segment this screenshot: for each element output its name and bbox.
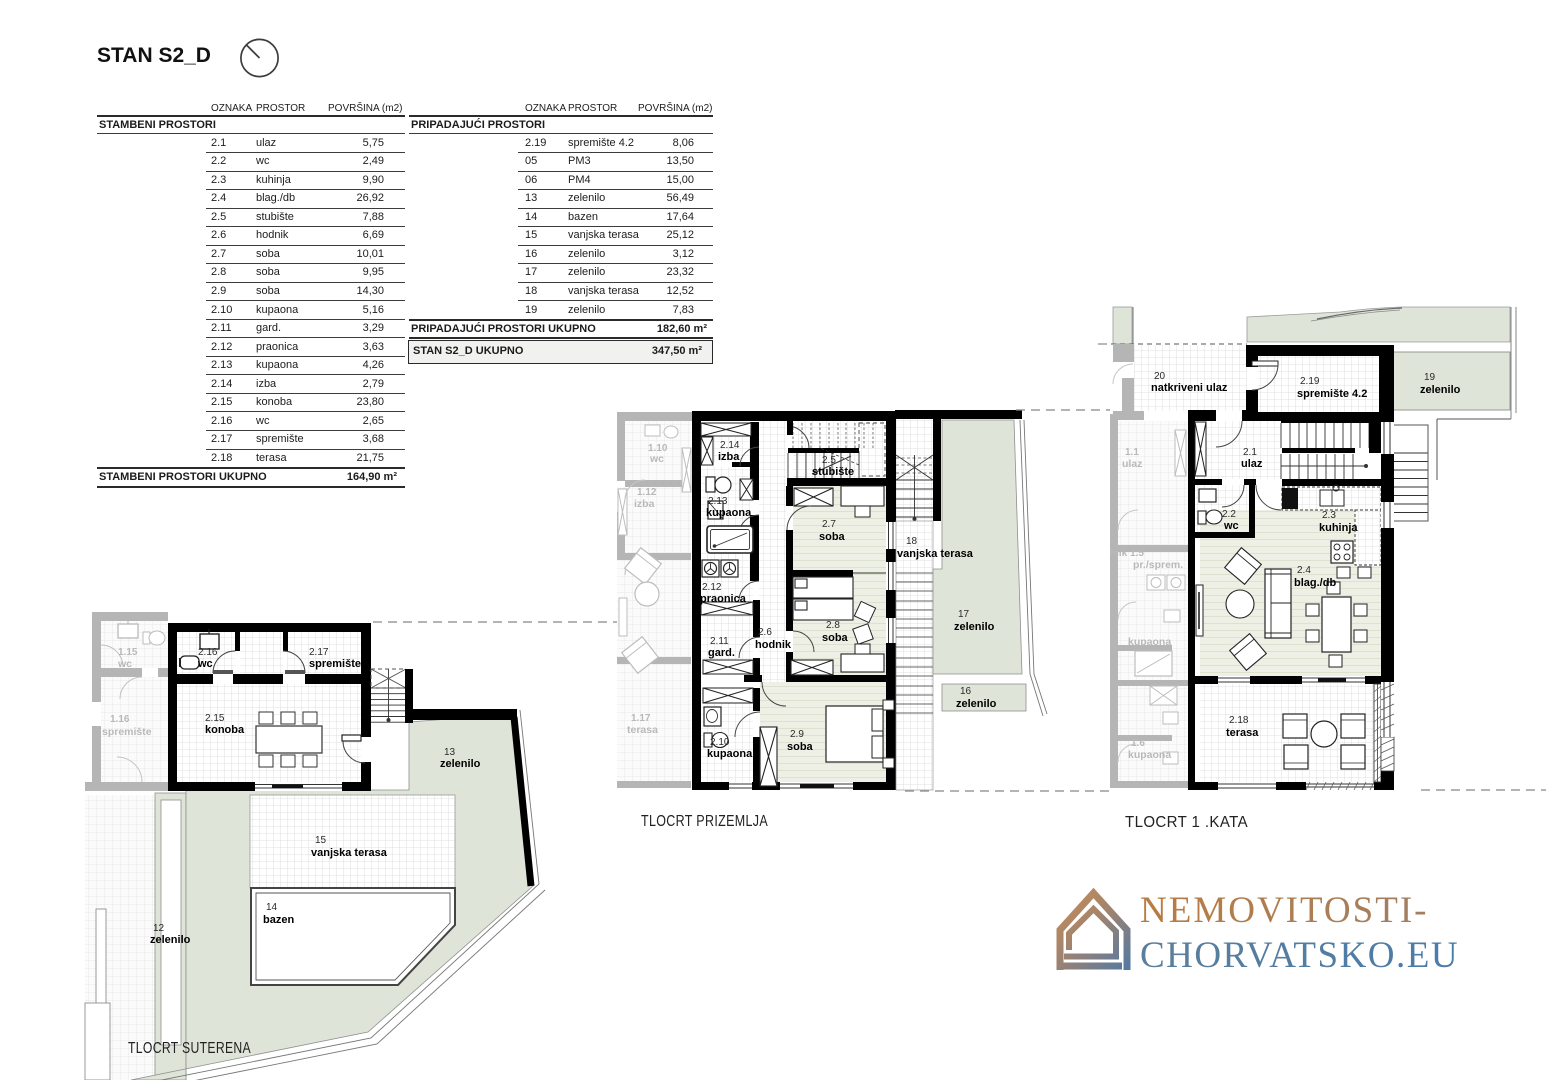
svg-text:2.2: 2.2: [1222, 509, 1236, 520]
svg-text:lnik 1.5: lnik 1.5: [1110, 548, 1144, 559]
svg-text:zelenilo: zelenilo: [956, 698, 997, 710]
svg-text:2.17: 2.17: [309, 647, 329, 658]
svg-text:2.19: 2.19: [1300, 376, 1320, 387]
svg-text:2.13: 2.13: [708, 496, 728, 507]
svg-text:terasa: terasa: [1226, 727, 1259, 739]
svg-text:1.1: 1.1: [1125, 447, 1139, 458]
svg-text:kupaona: kupaona: [1128, 749, 1171, 761]
svg-text:soba: soba: [787, 741, 814, 753]
svg-text:1.12: 1.12: [637, 487, 657, 498]
svg-text:kupaona: kupaona: [707, 748, 753, 760]
svg-text:bazen: bazen: [263, 914, 294, 926]
svg-text:2.18: 2.18: [1229, 715, 1249, 726]
svg-text:spremište: spremište: [102, 726, 152, 738]
svg-text:15: 15: [315, 835, 327, 846]
svg-text:gard.: gard.: [708, 647, 735, 659]
svg-text:2.8: 2.8: [826, 620, 840, 631]
svg-text:zelenilo: zelenilo: [1420, 384, 1461, 396]
svg-text:2.6: 2.6: [758, 627, 772, 638]
svg-text:1.17: 1.17: [631, 713, 651, 724]
svg-text:terasa: terasa: [627, 724, 658, 736]
svg-text:stubište: stubište: [812, 466, 854, 478]
svg-text:soba: soba: [819, 531, 846, 543]
svg-text:wc: wc: [197, 658, 213, 670]
svg-text:20: 20: [1154, 371, 1166, 382]
svg-text:TLOCRT PRIZEMLJA: TLOCRT PRIZEMLJA: [641, 813, 768, 830]
svg-text:spremište: spremište: [309, 658, 361, 670]
svg-text:17: 17: [958, 609, 970, 620]
svg-text:2.1: 2.1: [1243, 447, 1257, 458]
svg-text:1.15: 1.15: [118, 647, 138, 658]
svg-text:TLOCRT SUTERENA: TLOCRT SUTERENA: [128, 1040, 251, 1057]
svg-text:2.12: 2.12: [702, 582, 722, 593]
svg-text:1.6: 1.6: [1131, 738, 1145, 749]
svg-text:kuhinja: kuhinja: [1319, 522, 1358, 534]
svg-text:2.3: 2.3: [1322, 510, 1336, 521]
svg-text:kupaona: kupaona: [1128, 636, 1171, 648]
svg-text:1.16: 1.16: [110, 714, 130, 725]
svg-text:2.16: 2.16: [198, 647, 218, 658]
svg-text:2.4: 2.4: [1297, 565, 1311, 576]
svg-text:izba: izba: [634, 498, 655, 510]
svg-text:kupaona: kupaona: [706, 507, 752, 519]
svg-text:13: 13: [444, 747, 456, 758]
svg-text:ulaz: ulaz: [1122, 458, 1142, 470]
svg-text:12: 12: [153, 923, 165, 934]
svg-text:2.14: 2.14: [720, 440, 740, 451]
svg-text:2.15: 2.15: [205, 713, 225, 724]
svg-text:2.5: 2.5: [822, 455, 836, 466]
svg-text:18: 18: [906, 536, 918, 547]
svg-text:zelenilo: zelenilo: [440, 758, 481, 770]
svg-text:pr./sprem.: pr./sprem.: [1133, 559, 1183, 571]
svg-text:izba: izba: [718, 451, 740, 463]
svg-text:spremište 4.2: spremište 4.2: [1297, 388, 1367, 400]
svg-text:2.11: 2.11: [710, 636, 729, 647]
svg-text:14: 14: [266, 902, 278, 913]
svg-text:soba: soba: [822, 632, 849, 644]
svg-text:TLOCRT 1 .KATA: TLOCRT 1 .KATA: [1125, 814, 1248, 831]
svg-text:wc: wc: [117, 658, 132, 670]
svg-text:2.7: 2.7: [822, 519, 836, 530]
svg-text:praonica: praonica: [700, 593, 747, 605]
svg-text:ulaz: ulaz: [1241, 458, 1263, 470]
svg-text:hodnik: hodnik: [755, 639, 792, 651]
svg-text:19: 19: [1424, 372, 1436, 383]
svg-text:2.10: 2.10: [710, 737, 730, 748]
svg-text:2.9: 2.9: [790, 729, 804, 740]
svg-text:zelenilo: zelenilo: [954, 621, 995, 633]
svg-text:konoba: konoba: [205, 724, 245, 736]
svg-text:NEMOVITOSTI-: NEMOVITOSTI-: [1140, 890, 1428, 931]
svg-text:wc: wc: [649, 453, 664, 465]
svg-text:wc: wc: [1223, 520, 1239, 532]
svg-text:vanjska terasa: vanjska terasa: [897, 548, 974, 560]
svg-text:vanjska terasa: vanjska terasa: [311, 847, 388, 859]
svg-text:blag./db: blag./db: [1294, 577, 1336, 589]
svg-text:natkriveni ulaz: natkriveni ulaz: [1151, 382, 1228, 394]
svg-text:16: 16: [960, 686, 972, 697]
svg-text:CHORVATSKO.EU: CHORVATSKO.EU: [1140, 935, 1459, 976]
svg-text:zelenilo: zelenilo: [150, 934, 191, 946]
